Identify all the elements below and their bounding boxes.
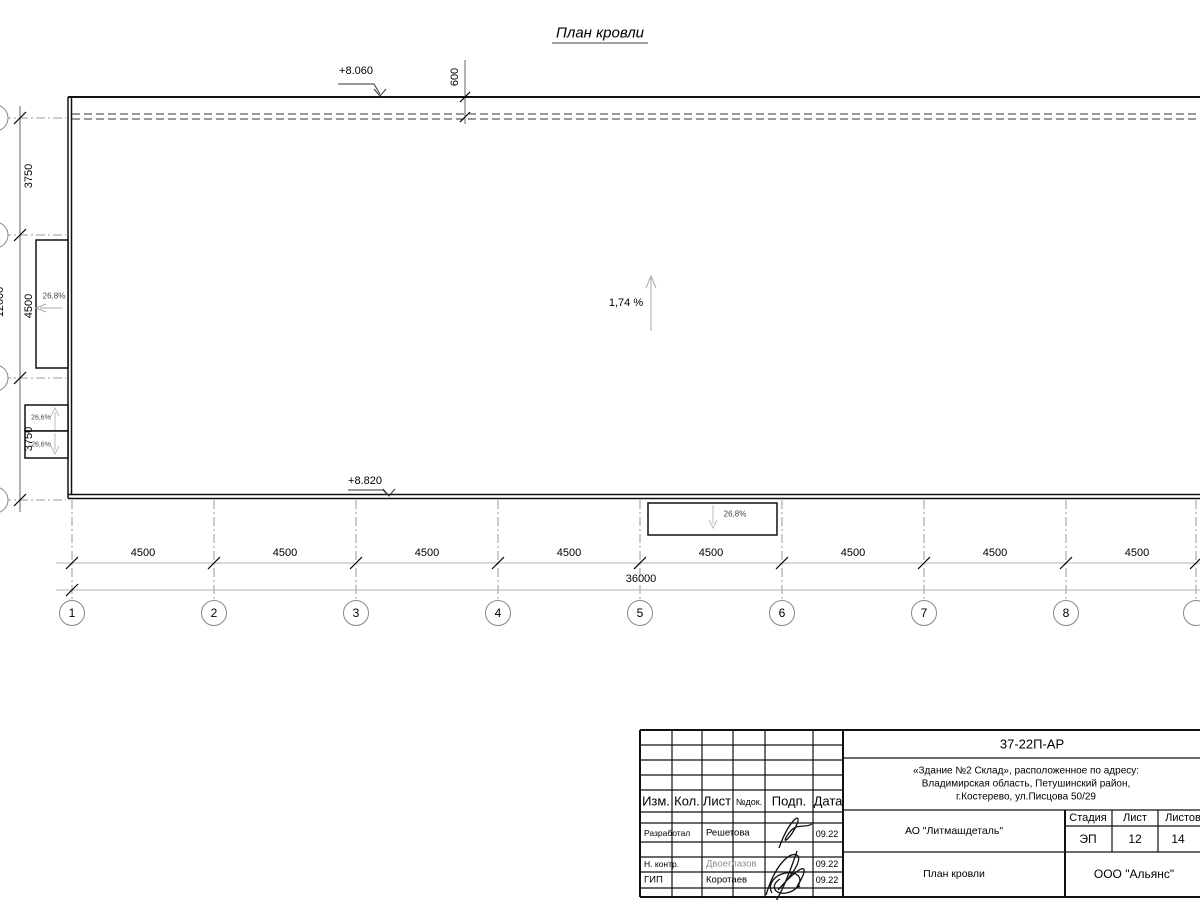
- tb-role-developer: Разработал: [644, 828, 690, 838]
- tb-name-developer: Решетова: [706, 828, 750, 839]
- tb-stage-value: ЭП: [1079, 832, 1096, 846]
- elevation-top-label: +8.060: [339, 65, 373, 77]
- tb-sheet-label: Лист: [1123, 812, 1147, 824]
- dim-left-2: 4500: [23, 294, 35, 318]
- dim-bottom-total: 36000: [626, 573, 657, 585]
- bottom-grid-lines: [72, 500, 1196, 601]
- axis-label-5: 5: [637, 606, 644, 620]
- offset-600-dim: [460, 60, 470, 124]
- tb-col-podp: Подп.: [772, 794, 807, 809]
- axis-label-7: 7: [921, 606, 928, 620]
- tb-col-data: Дата: [814, 794, 843, 809]
- tb-sheets-label: Листов: [1165, 812, 1200, 824]
- dim-bottom-6: 4500: [841, 547, 865, 559]
- slope-arrow-main: [646, 276, 656, 331]
- offset-600-label: 600: [449, 68, 461, 86]
- bottom-canopy: [648, 503, 777, 535]
- dim-bottom-5: 4500: [699, 547, 723, 559]
- drawing-sheet: План кровли +8.060 600 +8.820 1,74 % 26,…: [0, 0, 1200, 900]
- tb-sheet-title: План кровли: [923, 868, 985, 880]
- dim-bottom-2: 4500: [273, 547, 297, 559]
- tb-role-ncontrol: Н. контр.: [644, 859, 679, 869]
- dim-left-1: 3750: [23, 164, 35, 188]
- slope-left-label: 26,8%: [43, 292, 66, 301]
- elevation-bottom-label: +8.820: [348, 475, 382, 487]
- axis-label-2: 2: [211, 606, 218, 620]
- axis-label-3: 3: [353, 606, 360, 620]
- tb-date-developer: 09.22: [816, 829, 839, 839]
- dim-bottom-1: 4500: [131, 547, 155, 559]
- axis-label-8: 8: [1063, 606, 1070, 620]
- axis-label-6: 6: [779, 606, 786, 620]
- dim-bottom-7: 4500: [983, 547, 1007, 559]
- page-title: План кровли: [552, 25, 648, 44]
- tb-stage-label: Стадия: [1069, 812, 1107, 824]
- left-canopy: [36, 240, 68, 368]
- tb-sheets-value: 14: [1171, 832, 1184, 846]
- signatures: [766, 818, 812, 900]
- tb-col-kol: Кол.: [674, 794, 700, 809]
- dim-bottom-4: 4500: [557, 547, 581, 559]
- dim-bottom-3: 4500: [415, 547, 439, 559]
- axis-bubbles: [60, 601, 1200, 626]
- axis-label-1: 1: [69, 606, 76, 620]
- signature-korotaev: [766, 855, 804, 895]
- elev-mark-top: [338, 84, 386, 96]
- tb-col-izm: Изм.: [642, 794, 670, 809]
- tb-address-line2: Владимирская область, Петушинский район,: [922, 779, 1131, 790]
- tb-col-list: Лист: [703, 794, 731, 809]
- signature-dvoeglazov: [770, 873, 800, 893]
- tb-doc-number: 37-22П-АР: [1000, 737, 1064, 752]
- tb-name-ncontrol: Двоеглазов: [706, 859, 757, 870]
- tb-date-gip: 09.22: [816, 875, 839, 885]
- dim-bottom-8: 4500: [1125, 547, 1149, 559]
- dim-left-total: 12000: [0, 287, 6, 318]
- elev-mark-bottom: [348, 489, 395, 496]
- tb-name-gip: Коротаев: [706, 875, 747, 886]
- signature-reshetova: [779, 818, 812, 848]
- tb-sheet-value: 12: [1128, 832, 1141, 846]
- tb-date-ncontrol: 09.22: [816, 859, 839, 869]
- axis-label-4: 4: [495, 606, 502, 620]
- slope-bottom-label: 26,8%: [724, 510, 747, 519]
- tb-col-ndok: №док.: [736, 797, 762, 807]
- tb-org: ООО "Альянс": [1094, 867, 1174, 881]
- tb-address-line3: г.Костерево, ул.Писцова 50/29: [956, 792, 1096, 803]
- slope-main-label: 1,74 %: [609, 297, 643, 309]
- tb-role-gip: ГИП: [644, 875, 663, 886]
- dim-left-3: 3750: [23, 427, 35, 451]
- slope-box-top-label: 26,6%: [31, 415, 51, 422]
- tb-address-line1: «Здание №2 Склад», расположенное по адре…: [913, 766, 1139, 777]
- tb-company: АО "Литмашдеталь": [905, 825, 1003, 837]
- roof-dashed-lines: [72, 114, 1200, 119]
